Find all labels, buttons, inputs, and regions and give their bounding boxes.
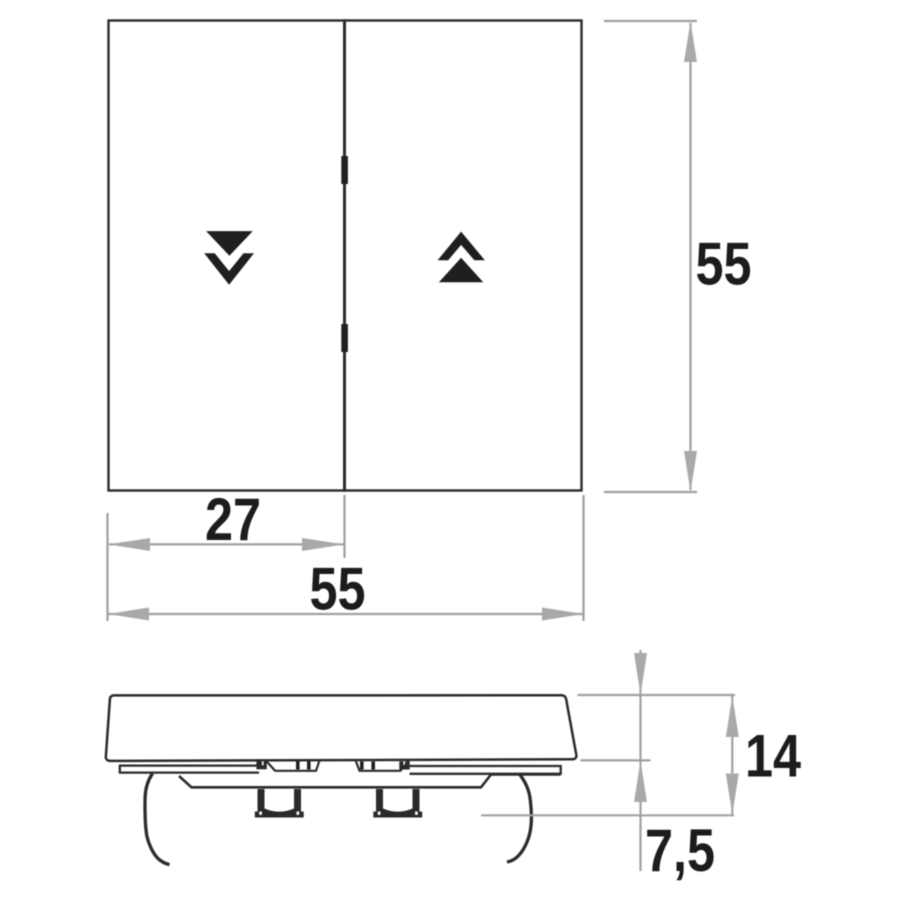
svg-text:27: 27	[205, 486, 261, 553]
svg-text:55: 55	[310, 555, 366, 622]
svg-text:55: 55	[696, 230, 752, 297]
svg-text:14: 14	[745, 722, 801, 789]
svg-text:7,5: 7,5	[645, 817, 715, 884]
